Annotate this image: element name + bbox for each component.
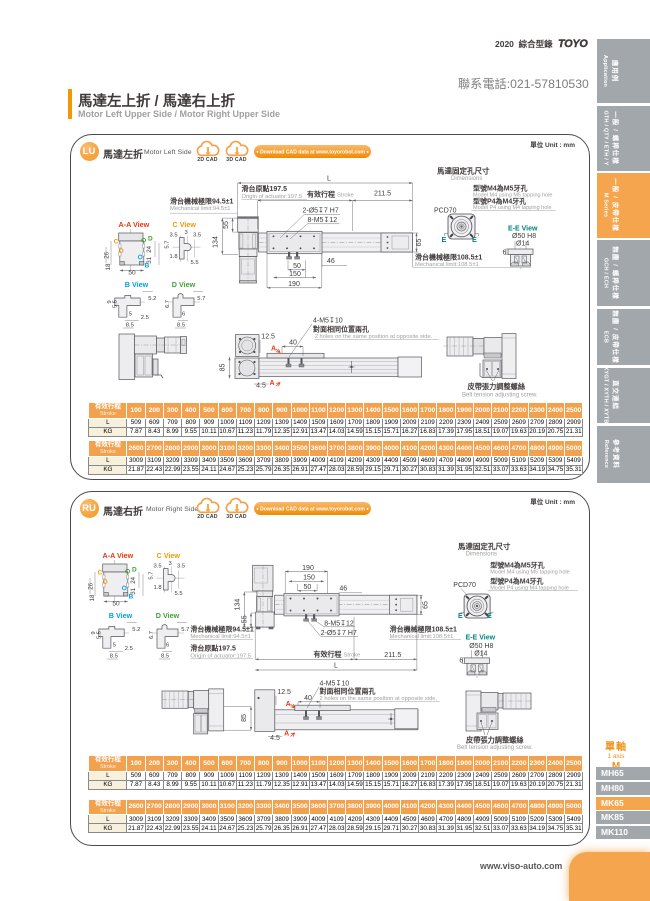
svg-text:Dimensions: Dimensions xyxy=(466,552,497,558)
svg-text:E-E View: E-E View xyxy=(508,226,538,233)
svg-text:4.5: 4.5 xyxy=(270,735,280,742)
svg-text:對面相同位置兩孔: 對面相同位置兩孔 xyxy=(320,686,376,695)
svg-text:2-Ø5↧7 H7: 2-Ø5↧7 H7 xyxy=(321,629,357,637)
svg-text:D View: D View xyxy=(172,280,196,289)
svg-text:65: 65 xyxy=(423,601,430,609)
svg-text:PCD70: PCD70 xyxy=(453,582,476,589)
svg-text:Stroke: Stroke xyxy=(344,653,361,659)
svg-text:Origin of actuator:197.5: Origin of actuator:197.5 xyxy=(242,194,303,200)
svg-text:5.5: 5.5 xyxy=(96,631,102,639)
svg-text:滑台機械極限94.5±1: 滑台機械極限94.5±1 xyxy=(190,625,253,634)
svg-text:5.7: 5.7 xyxy=(181,627,189,633)
svg-text:Ø14: Ø14 xyxy=(516,241,529,248)
svg-text:8-M5↧12: 8-M5↧12 xyxy=(324,620,354,628)
svg-text:Belt tension adjusting screw.: Belt tension adjusting screw. xyxy=(462,393,538,399)
svg-text:6.7: 6.7 xyxy=(149,631,155,639)
svg-text:型號P4為M4牙孔: 型號P4為M4牙孔 xyxy=(490,577,543,586)
svg-text:8.5: 8.5 xyxy=(161,654,169,660)
svg-text:Mechanical limit:94.5±1: Mechanical limit:94.5±1 xyxy=(190,634,251,640)
svg-text:PCD70: PCD70 xyxy=(434,208,457,215)
svg-text:1.8: 1.8 xyxy=(154,585,162,591)
svg-text:5.2: 5.2 xyxy=(132,627,140,633)
svg-text:2 holes on the same position a: 2 holes on the same position at opposite… xyxy=(315,334,433,340)
svg-text:Model P4 using M4 tapping hole: Model P4 using M4 tapping hole xyxy=(473,205,552,211)
svg-text:211.5: 211.5 xyxy=(384,652,401,659)
svg-text:E: E xyxy=(472,235,477,244)
svg-text:6: 6 xyxy=(166,643,169,649)
svg-text:L: L xyxy=(334,663,338,670)
svg-text:12.5: 12.5 xyxy=(261,334,275,341)
svg-text:5.5: 5.5 xyxy=(191,260,199,266)
svg-text:65: 65 xyxy=(416,239,423,247)
svg-text:190: 190 xyxy=(288,281,300,288)
svg-text:型號M4為M5牙孔: 型號M4為M5牙孔 xyxy=(490,561,544,570)
svg-text:Model M4 using M5 tapping hole: Model M4 using M5 tapping hole xyxy=(490,569,570,575)
svg-text:Origin of actuator:197.5: Origin of actuator:197.5 xyxy=(190,653,251,659)
svg-text:滑台機械極限108.5±1: 滑台機械極限108.5±1 xyxy=(415,253,482,262)
svg-text:A-A View: A-A View xyxy=(119,220,150,229)
svg-text:E: E xyxy=(487,611,492,620)
svg-text:211.5: 211.5 xyxy=(374,191,391,198)
svg-text:D: D xyxy=(148,235,153,242)
svg-text:E: E xyxy=(442,235,447,244)
svg-text:D: D xyxy=(132,566,137,573)
svg-text:55: 55 xyxy=(223,221,230,229)
svg-text:134: 134 xyxy=(235,599,242,611)
svg-text:2.5: 2.5 xyxy=(141,315,149,321)
svg-text:31: 31 xyxy=(130,587,137,594)
svg-text:有效行程: 有效行程 xyxy=(314,650,342,659)
svg-text:B View: B View xyxy=(125,280,149,289)
svg-text:L: L xyxy=(327,176,331,183)
svg-text:Belt tension adjusting screw.: Belt tension adjusting screw. xyxy=(457,745,533,751)
svg-text:E: E xyxy=(458,611,463,620)
svg-text:50: 50 xyxy=(293,263,301,270)
svg-text:46: 46 xyxy=(327,258,335,265)
svg-text:2 holes on the same position a: 2 holes on the same position at opposite… xyxy=(320,696,438,702)
svg-text:2-Ø5↧7 H7: 2-Ø5↧7 H7 xyxy=(303,207,339,215)
svg-text:Mechanical limit:108.5±1: Mechanical limit:108.5±1 xyxy=(390,634,454,640)
svg-text:C View: C View xyxy=(157,551,181,560)
svg-text:3: 3 xyxy=(185,230,188,236)
svg-text:85: 85 xyxy=(241,714,248,722)
svg-text:4.5: 4.5 xyxy=(256,383,266,390)
svg-text:Ø50 H8: Ø50 H8 xyxy=(512,233,536,240)
svg-text:D View: D View xyxy=(156,611,180,620)
svg-text:B View: B View xyxy=(109,611,133,620)
svg-text:型號P4為M4牙孔: 型號P4為M4牙孔 xyxy=(473,196,526,205)
svg-text:55: 55 xyxy=(241,615,248,623)
svg-text:3.5: 3.5 xyxy=(154,564,162,570)
svg-text:型號M4為M5牙孔: 型號M4為M5牙孔 xyxy=(473,184,527,193)
svg-text:6: 6 xyxy=(182,312,185,318)
svg-text:A: A xyxy=(270,380,275,387)
svg-text:3: 3 xyxy=(169,561,172,567)
svg-text:1.8: 1.8 xyxy=(170,254,178,260)
svg-text:6.7: 6.7 xyxy=(165,300,171,308)
svg-text:50: 50 xyxy=(304,584,312,591)
svg-text:3.5: 3.5 xyxy=(170,233,178,239)
svg-text:5.7: 5.7 xyxy=(197,296,205,302)
svg-text:A: A xyxy=(284,731,289,738)
svg-text:31: 31 xyxy=(146,256,153,263)
svg-text:滑台機械極限108.5±1: 滑台機械極限108.5±1 xyxy=(390,625,457,634)
svg-text:皮帶張力調整螺絲: 皮帶張力調整螺絲 xyxy=(465,736,524,745)
svg-text:150: 150 xyxy=(303,575,315,582)
svg-text:Dimensions: Dimensions xyxy=(451,176,482,182)
svg-text:46: 46 xyxy=(339,586,347,593)
svg-text:40: 40 xyxy=(289,340,297,347)
svg-text:C: C xyxy=(98,569,103,576)
svg-text:5.7: 5.7 xyxy=(149,572,155,580)
svg-text:8.5: 8.5 xyxy=(177,323,185,329)
svg-text:C: C xyxy=(114,238,119,245)
svg-text:滑台原點197.5: 滑台原點197.5 xyxy=(242,184,288,193)
svg-text:5.2: 5.2 xyxy=(148,296,156,302)
svg-text:對面相同位置兩孔: 對面相同位置兩孔 xyxy=(313,325,369,334)
svg-text:26: 26 xyxy=(103,251,110,258)
svg-text:5.5: 5.5 xyxy=(112,300,118,308)
svg-text:3.5: 3.5 xyxy=(177,564,185,570)
svg-text:26: 26 xyxy=(87,582,94,589)
svg-text:85: 85 xyxy=(220,364,227,372)
svg-text:滑台原點197.5: 滑台原點197.5 xyxy=(190,644,236,653)
svg-text:8-M5↧12: 8-M5↧12 xyxy=(308,216,338,224)
svg-text:C View: C View xyxy=(173,220,197,229)
svg-text:4-M5↧10: 4-M5↧10 xyxy=(313,317,343,325)
svg-text:Mechanical limit:94.5±1: Mechanical limit:94.5±1 xyxy=(170,206,231,212)
svg-text:馬達固定孔尺寸: 馬達固定孔尺寸 xyxy=(458,541,511,551)
svg-text:5: 5 xyxy=(113,643,116,649)
svg-text:150: 150 xyxy=(289,271,301,278)
svg-text:24: 24 xyxy=(130,576,137,583)
svg-text:5.7: 5.7 xyxy=(165,241,171,249)
svg-text:A-A View: A-A View xyxy=(103,551,134,560)
svg-text:A: A xyxy=(271,346,276,353)
svg-text:馬達固定孔尺寸: 馬達固定孔尺寸 xyxy=(437,166,490,176)
svg-text:24: 24 xyxy=(146,245,153,252)
svg-text:8.5: 8.5 xyxy=(110,654,118,660)
svg-text:4-M5↧10: 4-M5↧10 xyxy=(320,679,350,687)
svg-text:Mechanical limit:108.5±1: Mechanical limit:108.5±1 xyxy=(415,262,479,268)
svg-text:A: A xyxy=(286,701,291,708)
svg-text:5: 5 xyxy=(129,312,132,318)
svg-text:Ø14: Ø14 xyxy=(474,651,487,658)
svg-text:190: 190 xyxy=(302,565,314,572)
svg-text:Ø50 H8: Ø50 H8 xyxy=(469,643,493,650)
svg-text:有效行程: 有效行程 xyxy=(307,190,335,199)
svg-text:滑台機械極限94.5±1: 滑台機械極限94.5±1 xyxy=(170,197,233,206)
svg-text:皮帶張力調整螺絲: 皮帶張力調整螺絲 xyxy=(467,382,526,391)
svg-text:3.5: 3.5 xyxy=(193,233,201,239)
svg-text:2.5: 2.5 xyxy=(125,646,133,652)
svg-text:8.5: 8.5 xyxy=(126,323,134,329)
svg-text:E-E View: E-E View xyxy=(466,635,496,642)
svg-text:Stroke: Stroke xyxy=(337,193,354,199)
svg-text:12.5: 12.5 xyxy=(277,689,291,696)
svg-text:134: 134 xyxy=(213,236,220,248)
svg-text:5.5: 5.5 xyxy=(175,591,183,597)
